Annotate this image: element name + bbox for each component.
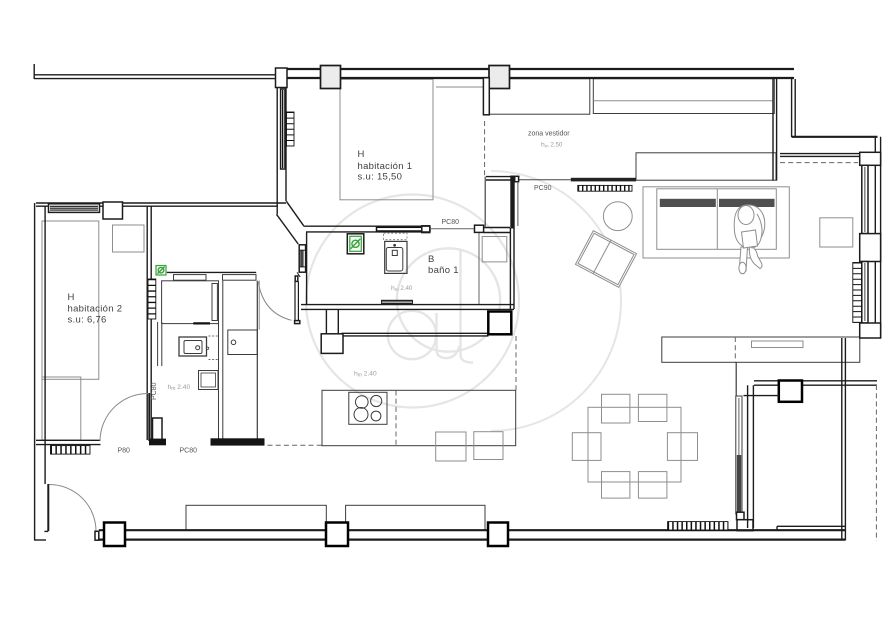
svg-text:H: H — [358, 149, 365, 160]
svg-text:hm 2.40: hm 2.40 — [391, 285, 413, 292]
svg-text:H: H — [68, 292, 75, 303]
svg-text:s.u: 15,50: s.u: 15,50 — [358, 172, 403, 183]
svg-text:hm 2.40: hm 2.40 — [168, 384, 191, 392]
svg-text:baño 1: baño 1 — [428, 265, 459, 276]
svg-text:PC80: PC80 — [442, 219, 460, 226]
svg-text:s.u: 6,76: s.u: 6,76 — [68, 315, 107, 326]
svg-text:PC80: PC80 — [151, 382, 158, 400]
svg-text:P80: P80 — [118, 448, 131, 455]
svg-text:PC80: PC80 — [180, 448, 198, 455]
svg-text:hm 2.50: hm 2.50 — [541, 142, 563, 149]
svg-text:B: B — [428, 254, 435, 265]
svg-text:habitación 2: habitación 2 — [68, 304, 123, 315]
svg-text:PC90: PC90 — [534, 185, 552, 192]
svg-text:zona vestidor: zona vestidor — [528, 131, 570, 138]
svg-text:hm 2.40: hm 2.40 — [354, 371, 377, 379]
svg-text:habitación 1: habitación 1 — [358, 161, 413, 172]
